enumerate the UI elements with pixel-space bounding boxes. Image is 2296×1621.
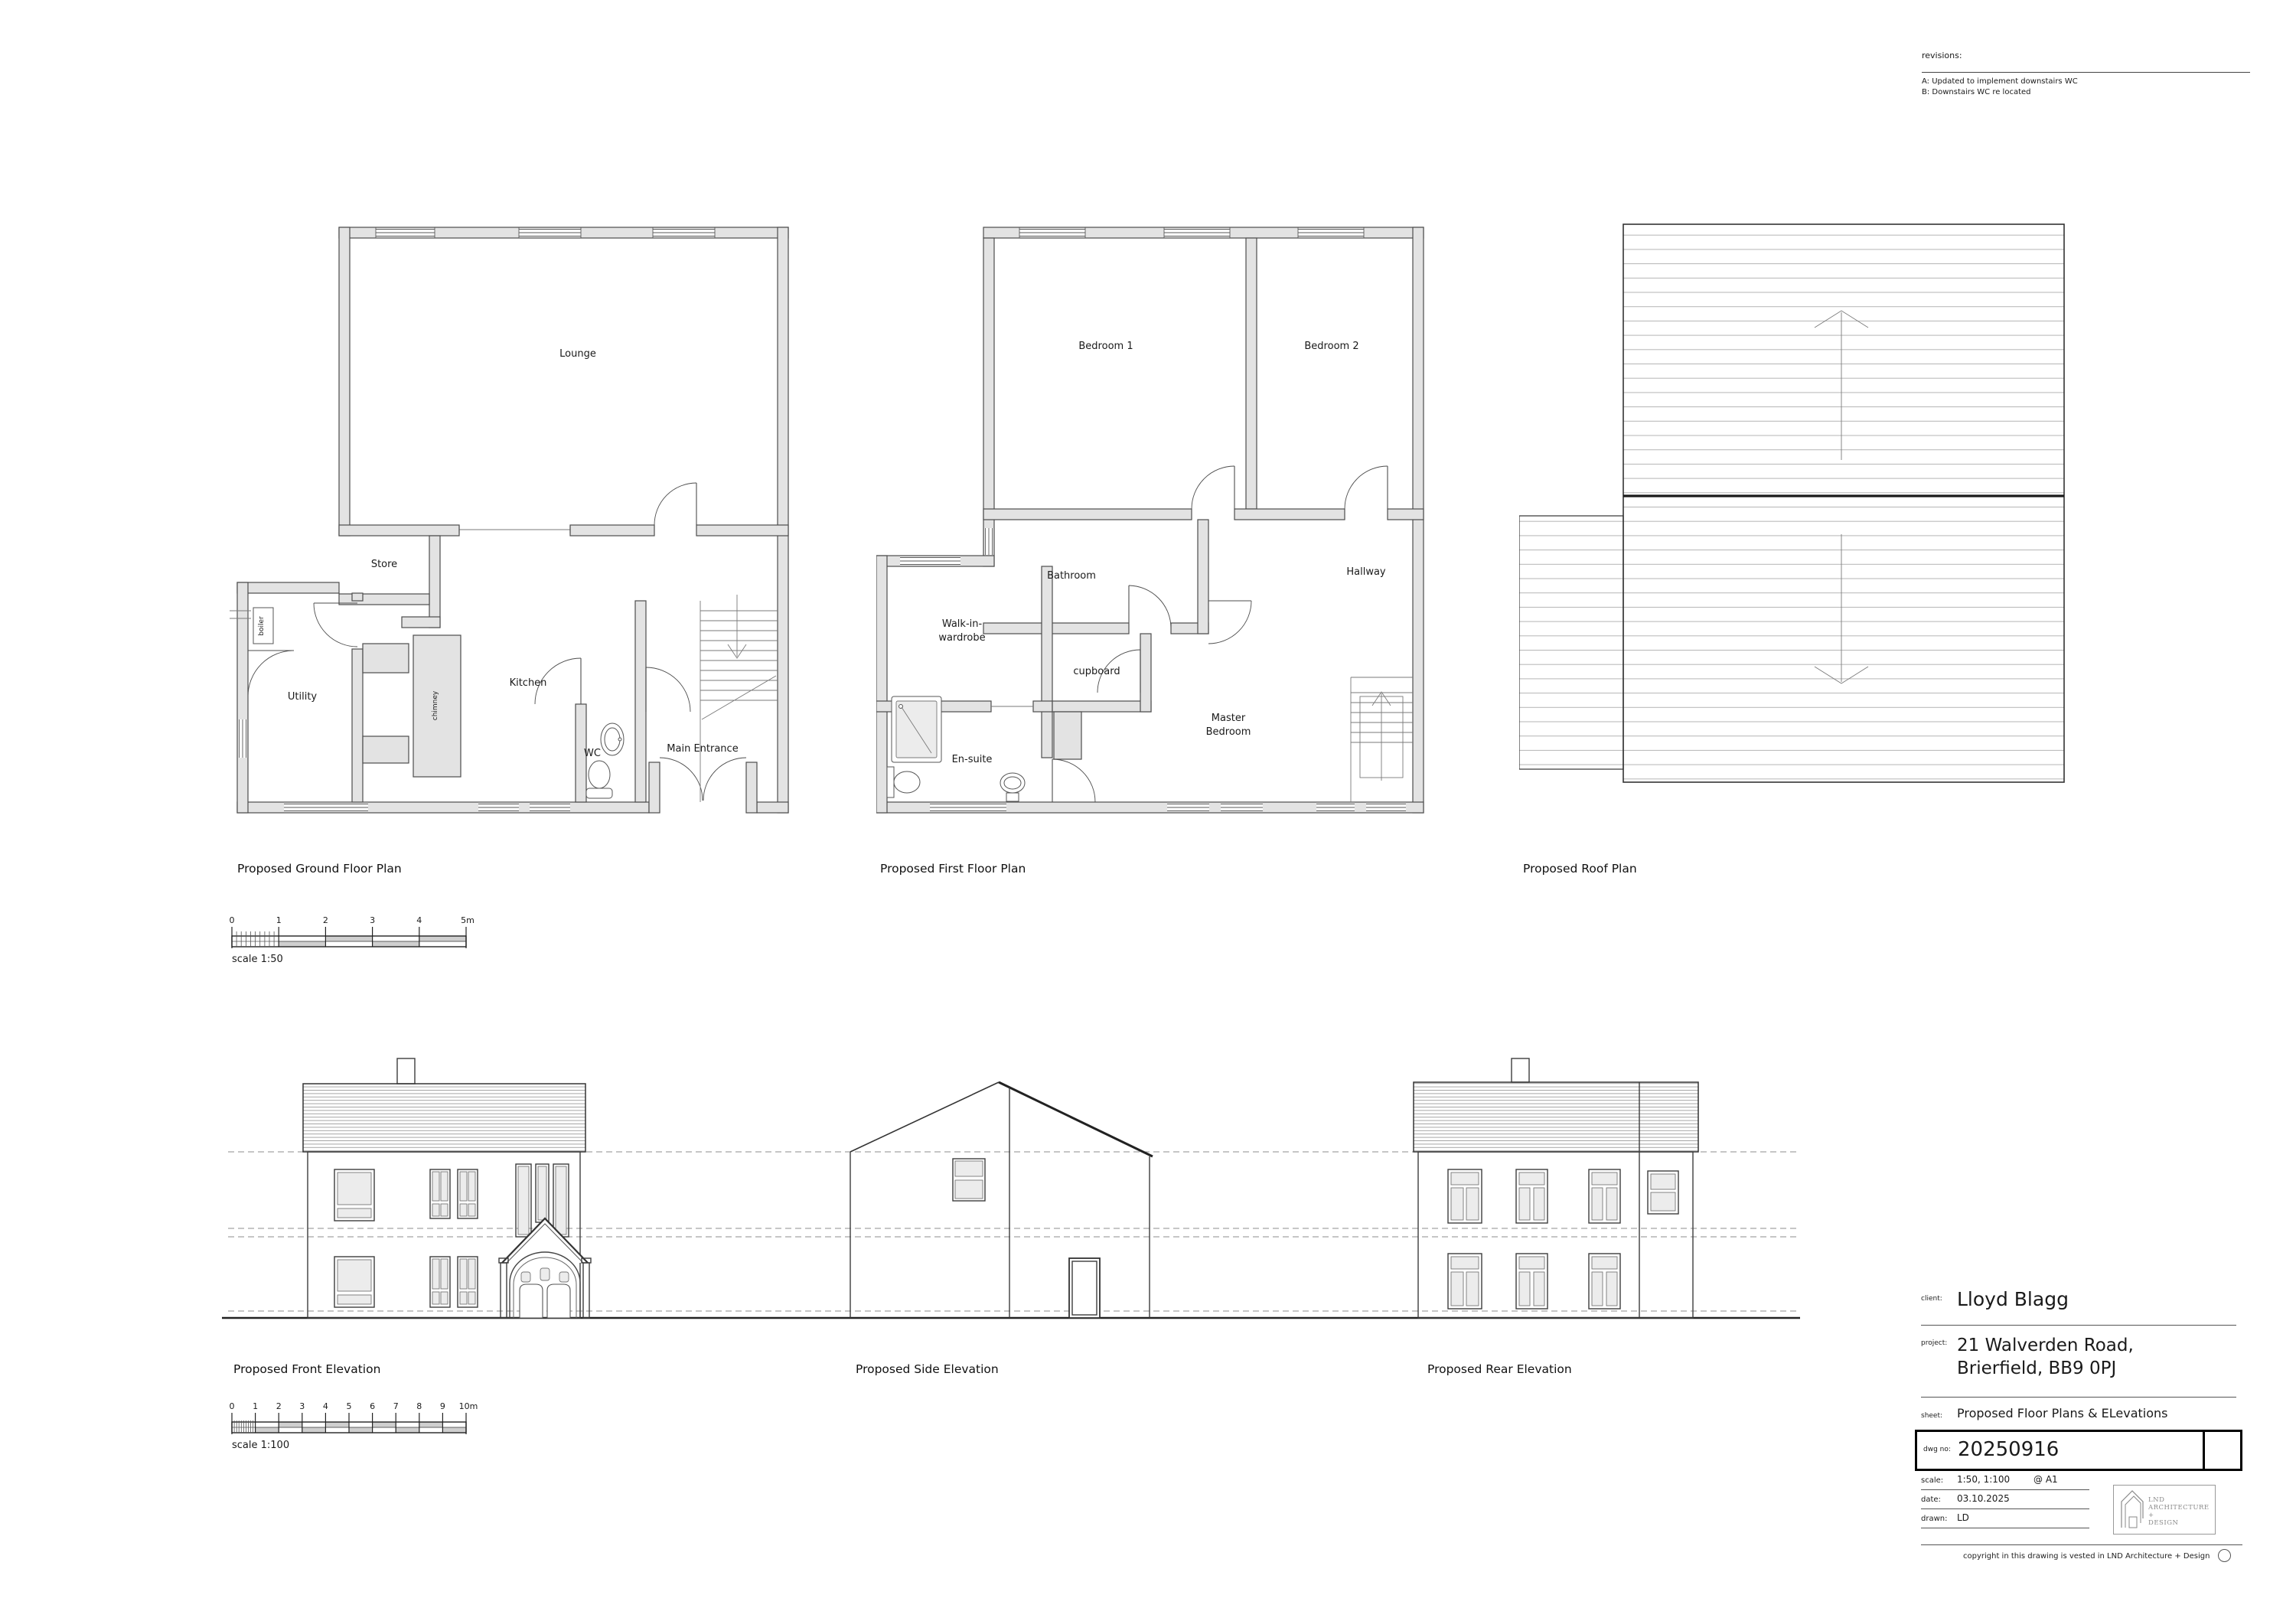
wc-label: WC [584, 748, 601, 759]
first-floor-plan-drawing: Bedroom 1 Bedroom 2 Bathroom cupboard Ha… [876, 222, 1427, 819]
door-swing [646, 667, 690, 712]
front-elevation [303, 1058, 591, 1318]
chimney-label: chimney [432, 690, 439, 720]
scale50-tick-2: 2 [323, 915, 328, 925]
master-bedroom-label-line1: Master [1212, 713, 1246, 724]
date-value: 03.10.2025 [1957, 1493, 2010, 1504]
first-floor-stairs [1351, 677, 1413, 802]
front-roof [303, 1084, 585, 1152]
paper-size-value: @ A1 [2033, 1474, 2058, 1485]
window-symbol [900, 557, 960, 566]
ensuite-label: En-suite [952, 754, 993, 765]
scale-bar-1-50: 0 1 2 3 4 5m scale 1:50 [230, 915, 482, 976]
scale100-tick-1: 1 [253, 1401, 258, 1411]
ground-floor-plan-title: Proposed Ground Floor Plan [237, 862, 402, 876]
row-underline [1921, 1489, 2089, 1490]
window-symbol [1516, 1254, 1548, 1309]
lounge-label: Lounge [559, 348, 596, 360]
door-swing [1208, 601, 1251, 644]
wc-sink [601, 723, 624, 755]
ensuite-toilet [887, 767, 920, 797]
window-symbol [530, 804, 570, 812]
scale-value: 1:50, 1:100 [1957, 1474, 2010, 1485]
row-underline [1921, 1508, 2089, 1509]
scale-bar-1-100: 0 1 2 3 4 5 6 7 8 9 10m scale 1:100 [230, 1401, 482, 1462]
window-symbol [430, 1169, 450, 1218]
project-label: project: [1921, 1339, 1947, 1347]
scale50-tick-4: 4 [416, 915, 422, 925]
window-symbol [284, 804, 368, 812]
logo-line3: DESIGN [2148, 1519, 2215, 1527]
scale100-caption: scale 1:100 [232, 1440, 289, 1451]
kitchen-label: Kitchen [510, 677, 547, 689]
utility-label: Utility [288, 691, 318, 703]
drawing-number-box: dwg no: 20250916 [1915, 1430, 2242, 1471]
revision-item-b: B: Downstairs WC re located [1922, 88, 2031, 96]
window-symbol [458, 1257, 478, 1307]
first-floor-plan-title: Proposed First Floor Plan [880, 862, 1026, 876]
project-address-line2: Brierfield, BB9 0PJ [1957, 1357, 2134, 1380]
store-label: Store [371, 559, 397, 570]
side-door [1069, 1258, 1100, 1318]
window-symbol [1164, 227, 1230, 238]
window-symbol [239, 719, 247, 758]
door-swing [314, 603, 357, 647]
drawn-label: drawn: [1921, 1515, 1947, 1523]
scale50-tick-3: 3 [370, 915, 375, 925]
scale50-tick-5m: 5m [461, 915, 475, 925]
lnd-logo-text: LND ARCHITECTURE + DESIGN [2148, 1496, 2215, 1527]
window-symbol [653, 227, 715, 238]
first-floor-room-labels: Bedroom 1 Bedroom 2 Bathroom cupboard Ha… [938, 341, 1386, 765]
window-symbol [1448, 1254, 1482, 1309]
hallway-label: Hallway [1346, 566, 1386, 578]
window-symbol [1448, 1169, 1482, 1223]
entrance-door [547, 1284, 570, 1318]
logo-line1: LND [2148, 1496, 2215, 1504]
front-elevation-title: Proposed Front Elevation [233, 1362, 380, 1376]
ground-floor-stairs [700, 595, 778, 802]
window-symbol [430, 1257, 450, 1307]
roof-annex-slope [1519, 516, 1623, 769]
window-symbol [1366, 804, 1406, 812]
stairs-up-arrow-icon [1372, 692, 1391, 781]
scale-label: scale: [1921, 1476, 1943, 1485]
chimney [397, 1058, 415, 1084]
first-floor-walls [876, 227, 1424, 813]
window-symbol [1589, 1169, 1620, 1223]
lnd-logo: LND ARCHITECTURE + DESIGN [2113, 1485, 2216, 1535]
titleblock-divider [1921, 1397, 2236, 1398]
roof-upper-slope [1623, 224, 2064, 496]
master-bedroom-label-line2: Bedroom [1206, 726, 1251, 738]
roof-plan-title: Proposed Roof Plan [1523, 862, 1637, 876]
scale100-tick-6: 6 [370, 1401, 375, 1411]
scale50-caption: scale 1:50 [232, 954, 283, 965]
drawing-number-cell: dwg no: 20250916 [1917, 1432, 2205, 1469]
datum-lines [222, 1152, 1800, 1318]
scale100-tick-8: 8 [416, 1401, 422, 1411]
window-symbol [458, 1169, 478, 1218]
copyright-note: copyright in this drawing is vested in L… [1963, 1552, 2210, 1561]
revision-item-a: A: Updated to implement downstairs WC [1922, 77, 2078, 86]
entrance-door [520, 1284, 543, 1318]
door-swing [654, 483, 696, 525]
scale100-tick-10m: 10m [459, 1401, 478, 1411]
roof-plan-drawing [1519, 220, 2066, 787]
side-elevation-title: Proposed Side Elevation [856, 1362, 999, 1376]
window-symbol [1221, 804, 1263, 812]
window-symbol [1589, 1254, 1620, 1309]
ensuite-sink [1000, 773, 1025, 801]
logo-line2: ARCHITECTURE + [2148, 1504, 2215, 1519]
client-label: client: [1921, 1295, 1942, 1303]
window-symbol [1019, 227, 1085, 238]
window-symbol [519, 227, 581, 238]
project-address: 21 Walverden Road, Brierfield, BB9 0PJ [1957, 1334, 2134, 1380]
porch [499, 1218, 591, 1318]
window-symbol [376, 227, 435, 238]
scale100-tick-7: 7 [393, 1401, 399, 1411]
window-symbol [334, 1169, 374, 1221]
ground-floor-room-labels: Lounge Store boiler Utility chimney Kitc… [258, 348, 739, 759]
entrance-double-door-swing [660, 758, 746, 801]
ensuite-shower [892, 696, 941, 762]
scale100-tick-4: 4 [323, 1401, 328, 1411]
door-swing [1052, 759, 1095, 802]
rear-elevation-title: Proposed Rear Elevation [1427, 1362, 1572, 1376]
dwg-no-value: 20250916 [1958, 1438, 2059, 1461]
titleblock-divider [1921, 1325, 2236, 1326]
ground-floor-plan-drawing: Lounge Store boiler Utility chimney Kitc… [230, 222, 796, 819]
side-elevation [850, 1082, 1153, 1318]
chimney [1512, 1058, 1529, 1082]
scale100-tick-9: 9 [440, 1401, 445, 1411]
date-label: date: [1921, 1495, 1941, 1504]
scale100-tick-3: 3 [299, 1401, 305, 1411]
rear-elevation [1414, 1058, 1698, 1318]
dwg-no-label: dwg no: [1923, 1446, 1951, 1453]
ground-floor-walls [237, 227, 788, 813]
registration-circle-icon [2218, 1549, 2231, 1562]
walk-in-wardrobe-label-line2: wardrobe [938, 632, 985, 644]
window-symbol [334, 1257, 374, 1307]
revision-cell [2205, 1432, 2240, 1469]
elevations-drawing [222, 1056, 1806, 1336]
revisions-label: revisions: [1922, 51, 1962, 60]
window-symbol [478, 804, 519, 812]
sheet-label: sheet: [1921, 1412, 1942, 1420]
window-symbol [1648, 1171, 1678, 1214]
revisions-divider [1922, 72, 2250, 73]
lnd-house-logo-icon [2117, 1488, 2149, 1531]
scale50-tick-0: 0 [230, 915, 235, 925]
drawn-value: LD [1957, 1512, 1969, 1523]
door-swing [1129, 585, 1171, 628]
window-symbol [930, 804, 1006, 812]
scale100-tick-5: 5 [347, 1401, 352, 1411]
walk-in-wardrobe-label-line1: Walk-in- [942, 618, 983, 630]
door-swing [1192, 466, 1234, 509]
client-name: Lloyd Blagg [1957, 1288, 2069, 1310]
window-symbol [985, 528, 993, 555]
rear-roof [1414, 1082, 1698, 1152]
wc-toilet [586, 761, 612, 798]
project-address-line1: 21 Walverden Road, [1957, 1334, 2134, 1357]
cupboard-label: cupboard [1073, 666, 1120, 677]
door-swing [1345, 466, 1388, 509]
window-symbol [1298, 227, 1364, 238]
scale100-tick-2: 2 [276, 1401, 282, 1411]
bedroom2-label: Bedroom 2 [1304, 341, 1358, 352]
scale100-tick-0: 0 [230, 1401, 235, 1411]
scale50-tick-1: 1 [276, 915, 282, 925]
boiler-label: boiler [258, 616, 266, 636]
titleblock-divider [1921, 1544, 2242, 1545]
folding-door-symbol [459, 526, 570, 533]
window-symbol [953, 1159, 985, 1201]
stairs-down-arrow-icon [728, 595, 746, 658]
window-symbol [1167, 804, 1209, 812]
bathroom-label: Bathroom [1047, 570, 1096, 582]
roof-lower-slope [1623, 496, 2064, 782]
window-symbol [1316, 804, 1355, 812]
main-entrance-label: Main Entrance [667, 743, 738, 755]
window-symbol [1516, 1169, 1548, 1223]
bedroom1-label: Bedroom 1 [1078, 341, 1133, 352]
row-underline [1921, 1528, 2089, 1528]
door-swing [248, 651, 294, 696]
sheet-name: Proposed Floor Plans & ELevations [1957, 1406, 2168, 1420]
